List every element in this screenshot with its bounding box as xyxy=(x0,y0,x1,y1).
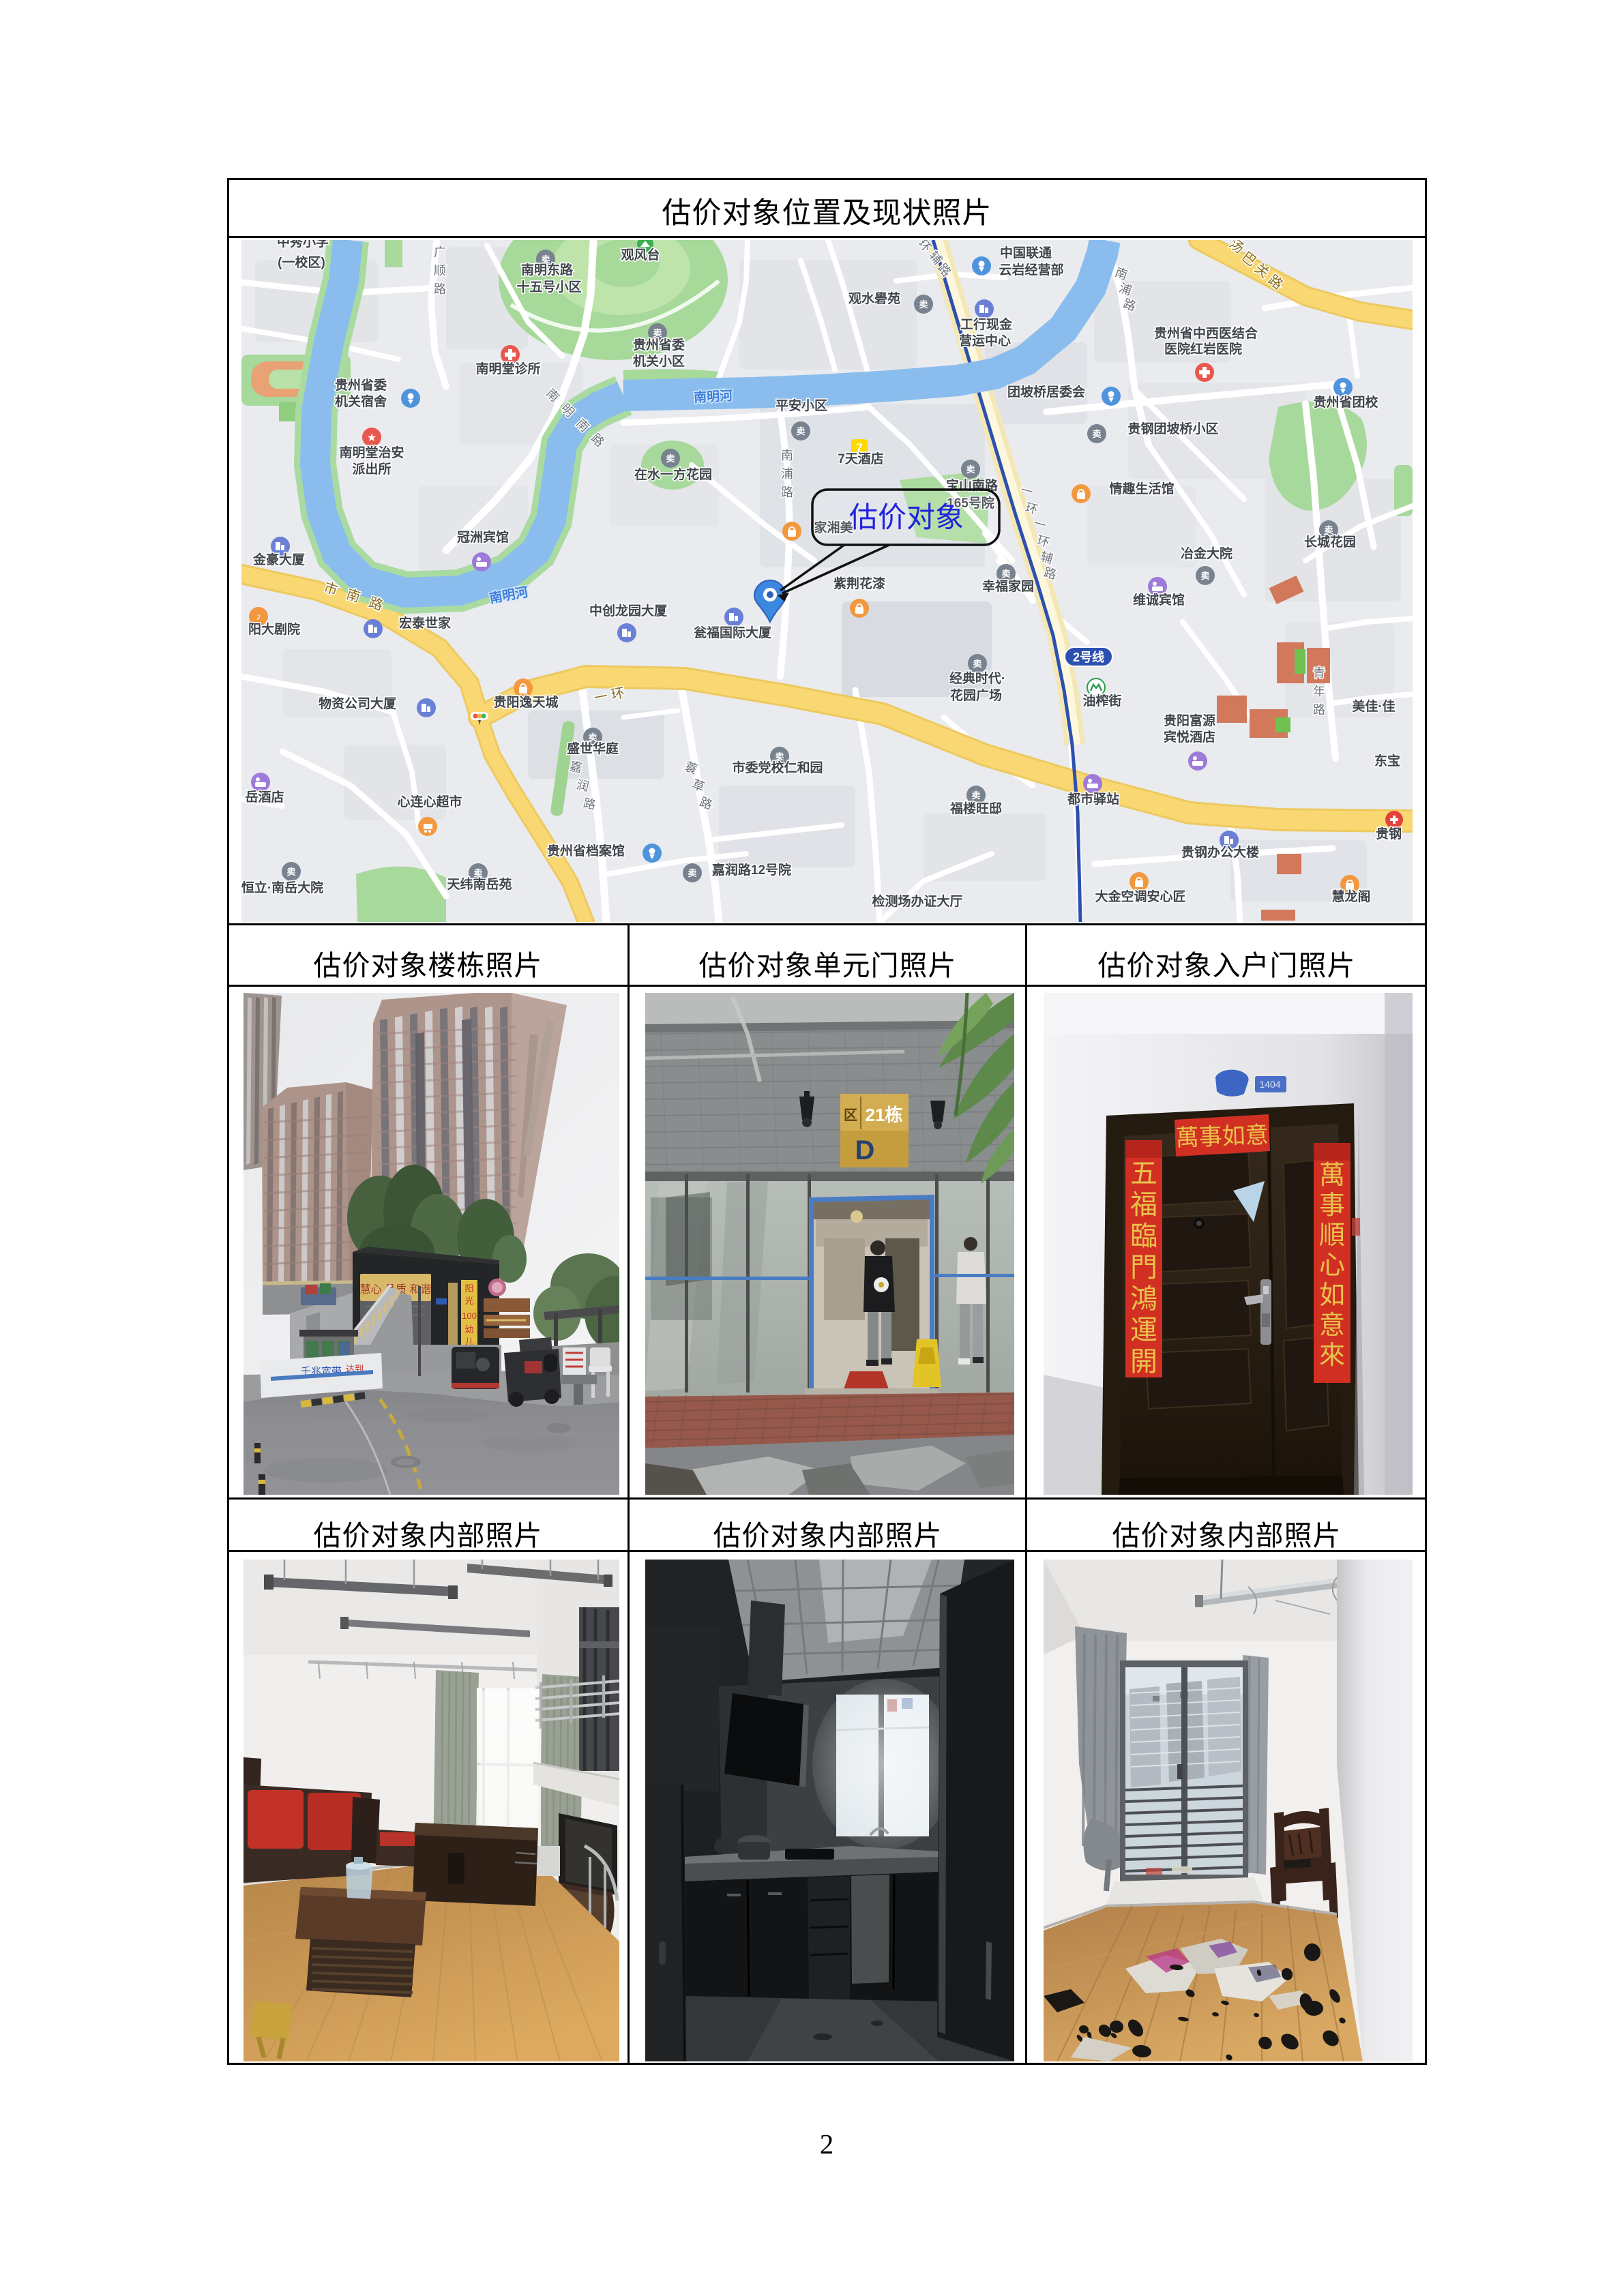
svg-text:開: 開 xyxy=(1130,1346,1157,1377)
svg-text:一: 一 xyxy=(593,689,609,706)
svg-text:都市驿站: 都市驿站 xyxy=(1067,791,1119,807)
svg-text:事: 事 xyxy=(1319,1191,1345,1220)
svg-text:贵州省委: 贵州省委 xyxy=(633,338,685,353)
svg-text:卖: 卖 xyxy=(919,299,928,310)
svg-text:意: 意 xyxy=(1319,1311,1345,1340)
svg-text:卖: 卖 xyxy=(666,453,675,464)
svg-text:2号线: 2号线 xyxy=(1073,650,1104,664)
svg-text:五: 五 xyxy=(1130,1158,1157,1189)
svg-text:油榨街: 油榨街 xyxy=(1082,693,1121,709)
svg-text:嘉润路12号院: 嘉润路12号院 xyxy=(711,862,791,878)
svg-text:中秀小学: 中秀小学 xyxy=(277,240,329,250)
svg-text:順: 順 xyxy=(1319,1221,1345,1250)
svg-text:天纬南岳苑: 天纬南岳苑 xyxy=(447,876,512,892)
svg-text:贵阳逸天城: 贵阳逸天城 xyxy=(493,694,558,710)
svg-text:贵钢团坡桥小区: 贵钢团坡桥小区 xyxy=(1127,421,1218,436)
svg-text:机关小区: 机关小区 xyxy=(633,353,685,369)
svg-text:卖: 卖 xyxy=(966,464,975,475)
svg-text:來: 來 xyxy=(1319,1341,1345,1370)
svg-text:顺: 顺 xyxy=(434,264,446,278)
svg-text:贵钢办公大楼: 贵钢办公大楼 xyxy=(1181,844,1259,860)
svg-text:幸福家园: 幸福家园 xyxy=(982,578,1034,594)
svg-text:观水礐苑: 观水礐苑 xyxy=(848,290,900,306)
svg-text:估价对象: 估价对象 xyxy=(849,503,964,534)
svg-text:恒立·南岳大院: 恒立·南岳大院 xyxy=(241,880,323,895)
svg-text:维诚宾馆: 维诚宾馆 xyxy=(1133,592,1185,608)
svg-text:东宝: 东宝 xyxy=(1374,753,1400,769)
svg-text:浦: 浦 xyxy=(781,467,793,481)
svg-text:团坡桥居委会: 团坡桥居委会 xyxy=(1007,384,1085,400)
svg-text:美佳·佳: 美佳·佳 xyxy=(1352,698,1395,714)
svg-text:贵钢: 贵钢 xyxy=(1376,826,1402,841)
svg-text:100: 100 xyxy=(462,1311,477,1321)
svg-text:卖: 卖 xyxy=(973,659,981,669)
svg-text:門: 門 xyxy=(1130,1252,1157,1283)
svg-text:平安小区: 平安小区 xyxy=(776,398,827,413)
svg-text:宾悦酒店: 宾悦酒店 xyxy=(1164,729,1215,745)
svg-text:机关宿舍: 机关宿舍 xyxy=(335,393,387,409)
svg-text:宏泰世家: 宏泰世家 xyxy=(399,615,452,631)
svg-text:长城花园: 长城花园 xyxy=(1304,534,1356,550)
svg-text:路: 路 xyxy=(781,486,793,499)
svg-text:贵州省中西医结合: 贵州省中西医结合 xyxy=(1154,325,1258,341)
svg-text:营运中心: 营运中心 xyxy=(959,333,1011,348)
svg-text:市委党校仁和园: 市委党校仁和园 xyxy=(732,760,823,775)
svg-text:工行现金: 工行现金 xyxy=(960,316,1013,332)
svg-text:南明堂诊所: 南明堂诊所 xyxy=(475,361,540,376)
svg-text:心连心超市: 心连心超市 xyxy=(397,794,462,809)
svg-text:福楼旺邸: 福楼旺邸 xyxy=(949,801,1002,816)
svg-text:卖: 卖 xyxy=(588,732,597,743)
svg-text:冠洲宾馆: 冠洲宾馆 xyxy=(457,529,509,545)
svg-text:中国联通: 中国联通 xyxy=(1000,245,1052,260)
svg-text:卖: 卖 xyxy=(473,868,482,878)
svg-text:盛世华庭: 盛世华庭 xyxy=(567,741,619,756)
svg-text:卖: 卖 xyxy=(1324,525,1333,535)
svg-text:阳: 阳 xyxy=(464,1283,473,1294)
svg-text:臨: 臨 xyxy=(1130,1221,1157,1251)
svg-text:慧龙阁: 慧龙阁 xyxy=(1331,889,1370,904)
svg-text:萬事如意: 萬事如意 xyxy=(1175,1122,1269,1152)
svg-text:十五号小区: 十五号小区 xyxy=(516,279,581,295)
svg-text:情趣生活馆: 情趣生活馆 xyxy=(1109,481,1174,496)
svg-text:卖: 卖 xyxy=(653,328,662,338)
svg-text:運: 運 xyxy=(1130,1315,1157,1345)
svg-text:南: 南 xyxy=(781,449,793,462)
svg-text:花园广场: 花园广场 xyxy=(950,687,1002,703)
svg-text:岳酒店: 岳酒店 xyxy=(245,789,284,805)
svg-text:卖: 卖 xyxy=(796,426,805,436)
svg-text:光: 光 xyxy=(464,1296,473,1306)
svg-text:南明东路: 南明东路 xyxy=(521,262,574,278)
svg-text:福: 福 xyxy=(1130,1189,1157,1220)
svg-text:青: 青 xyxy=(1313,666,1325,680)
svg-text:7天酒店: 7天酒店 xyxy=(838,451,884,466)
svg-text:鴻: 鴻 xyxy=(1130,1283,1157,1314)
svg-text:紫荆花漆: 紫荆花漆 xyxy=(833,576,885,591)
svg-text:大金空调安心匠: 大金空调安心匠 xyxy=(1095,889,1185,904)
svg-text:年: 年 xyxy=(1313,685,1325,698)
svg-text:环: 环 xyxy=(610,686,626,703)
svg-text:卖: 卖 xyxy=(1200,571,1209,581)
svg-text:贵州省档案馆: 贵州省档案馆 xyxy=(547,843,625,859)
svg-text:(一校区): (一校区) xyxy=(278,254,325,270)
svg-text:贵阳富源: 贵阳富源 xyxy=(1164,713,1215,728)
svg-text:路: 路 xyxy=(1313,703,1325,717)
svg-text:经典时代·: 经典时代· xyxy=(949,670,1005,686)
svg-text:心: 心 xyxy=(1319,1251,1345,1280)
svg-text:卖: 卖 xyxy=(1092,429,1101,439)
svg-text:卖: 卖 xyxy=(775,751,784,762)
svg-text:卖: 卖 xyxy=(971,790,980,801)
svg-text:贵州省团校: 贵州省团校 xyxy=(1313,394,1378,410)
svg-text:♪: ♪ xyxy=(256,611,261,623)
svg-text:冶金大院: 冶金大院 xyxy=(1181,546,1232,561)
svg-text:中创龙园大厦: 中创龙园大厦 xyxy=(589,603,668,618)
svg-text:南明河: 南明河 xyxy=(694,389,733,406)
svg-text:观风台: 观风台 xyxy=(621,247,660,263)
svg-text:D: D xyxy=(855,1135,875,1165)
svg-text:★: ★ xyxy=(367,432,377,444)
svg-text:瓮福国际大厦: 瓮福国际大厦 xyxy=(694,625,772,640)
svg-text:区: 区 xyxy=(844,1108,857,1123)
svg-text:在水一方花园: 在水一方花园 xyxy=(634,466,712,482)
svg-text:广: 广 xyxy=(434,245,446,259)
svg-text:1404: 1404 xyxy=(1259,1079,1280,1090)
svg-text:检测场办证大厅: 检测场办证大厅 xyxy=(872,893,962,909)
svg-text:医院红岩医院: 医院红岩医院 xyxy=(1164,341,1242,357)
svg-text:萬: 萬 xyxy=(1319,1161,1345,1190)
svg-text:如: 如 xyxy=(1319,1281,1345,1310)
svg-text:物资公司大厦: 物资公司大厦 xyxy=(319,696,397,711)
svg-text:卖: 卖 xyxy=(688,868,696,878)
svg-text:阳大剧院: 阳大剧院 xyxy=(248,621,300,637)
svg-text:幼: 幼 xyxy=(464,1324,473,1335)
svg-text:金豪大厦: 金豪大厦 xyxy=(252,552,306,567)
svg-text:贵州省委: 贵州省委 xyxy=(335,378,387,393)
svg-text:派出所: 派出所 xyxy=(352,461,391,477)
svg-text:路: 路 xyxy=(434,282,446,296)
svg-text:云岩经营部: 云岩经营部 xyxy=(999,262,1063,278)
svg-text:卖: 卖 xyxy=(1001,569,1010,579)
svg-text:卖: 卖 xyxy=(286,867,295,877)
svg-text:21栋: 21栋 xyxy=(866,1105,903,1125)
svg-text:南明堂治安: 南明堂治安 xyxy=(339,445,404,460)
